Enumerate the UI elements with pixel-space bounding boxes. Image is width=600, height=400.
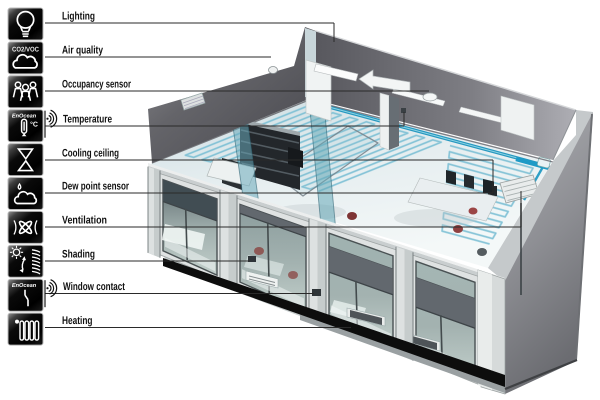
svg-text:Heating: Heating <box>62 315 93 327</box>
svg-text:EnOcean: EnOcean <box>12 283 37 289</box>
svg-text:Temperature: Temperature <box>63 114 112 126</box>
svg-text:Air quality: Air quality <box>62 45 104 57</box>
svg-text:°C: °C <box>30 122 38 129</box>
svg-text:Occupancy sensor: Occupancy sensor <box>62 79 131 91</box>
svg-text:Window contact: Window contact <box>63 281 125 293</box>
svg-text:CO2/VOC: CO2/VOC <box>12 46 39 53</box>
svg-text:Ventilation: Ventilation <box>62 215 107 227</box>
svg-text:Shading: Shading <box>62 249 95 261</box>
svg-text:Lighting: Lighting <box>62 11 95 23</box>
svg-text:Cooling ceiling: Cooling ceiling <box>62 148 119 160</box>
svg-text:Dew point sensor: Dew point sensor <box>62 181 130 193</box>
